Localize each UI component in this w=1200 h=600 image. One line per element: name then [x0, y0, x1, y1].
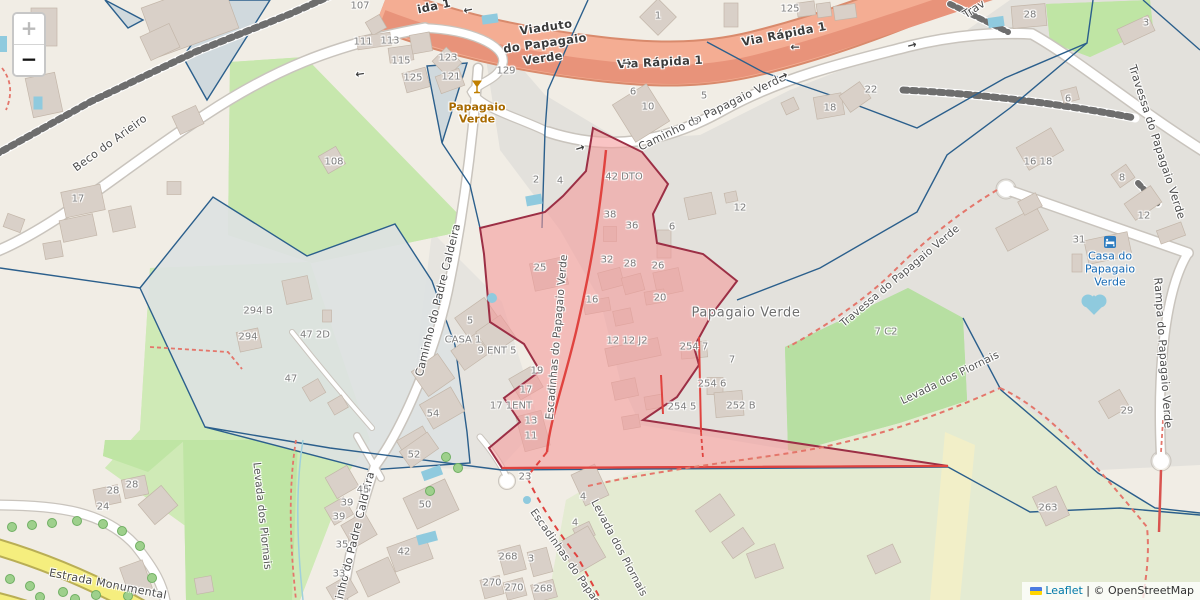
zoom-control: + −	[12, 12, 46, 77]
openstreetmap-link[interactable]: © OpenStreetMap	[1093, 584, 1194, 597]
zoom-in-button[interactable]: +	[14, 14, 44, 44]
zoom-out-button[interactable]: −	[14, 44, 44, 75]
map-canvas[interactable]: Viadutodo PapagaioVerdeida 1Via Rápida 1…	[0, 0, 1200, 600]
map-tiles	[0, 0, 1200, 600]
attribution-bar: Leaflet | © OpenStreetMap	[1022, 582, 1200, 600]
attribution-separator: |	[1083, 584, 1094, 597]
leaflet-link[interactable]: Leaflet	[1045, 584, 1082, 597]
ukraine-flag-icon	[1030, 587, 1042, 595]
